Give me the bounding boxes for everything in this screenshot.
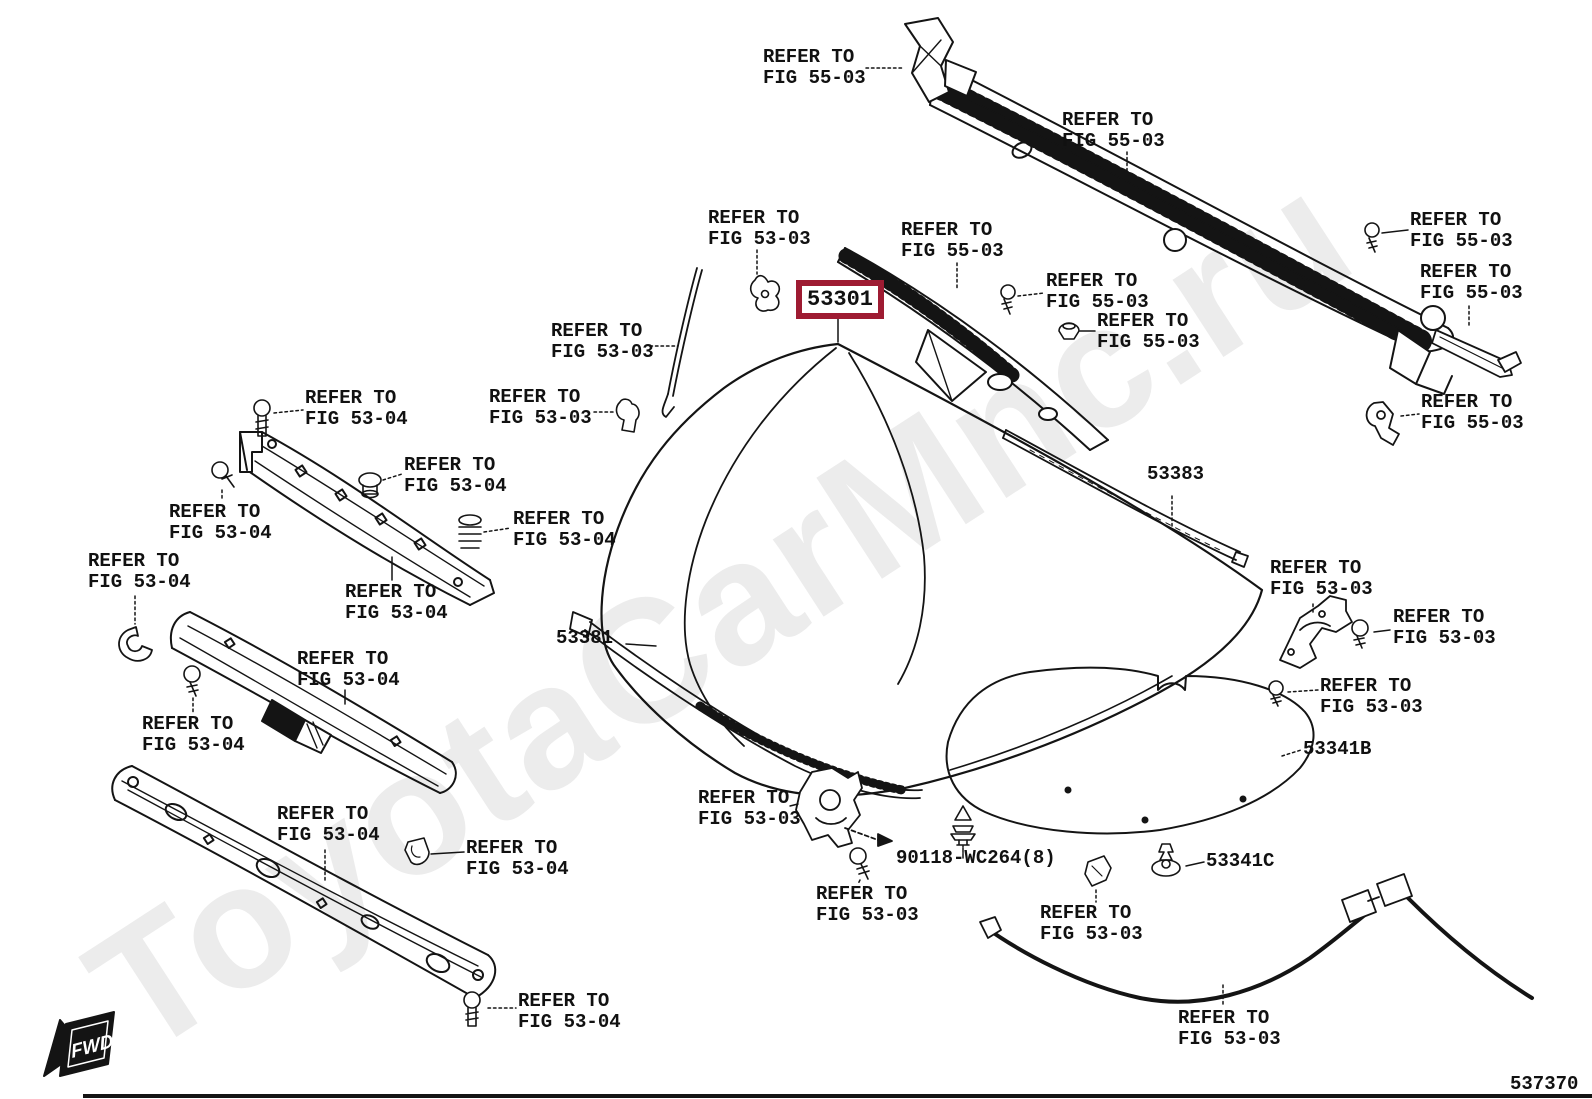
diagram-number: 537370 (1510, 1073, 1578, 1095)
part-53383[interactable]: 53383 (1147, 464, 1204, 485)
ref-fig-55-03-1: REFER TO FIG 55-03 (763, 47, 866, 89)
ref-fig-55-03-3: REFER TO FIG 55-03 (901, 220, 1004, 262)
ref-fig-55-03-7: REFER TO FIG 55-03 (1420, 262, 1523, 304)
part-53381[interactable]: 53381 (556, 628, 613, 649)
ref-fig-55-03-6: REFER TO FIG 55-03 (1410, 210, 1513, 252)
ref-fig-53-04-8: REFER TO FIG 53-04 (142, 714, 245, 756)
ref-fig-53-04-2: REFER TO FIG 53-04 (169, 502, 272, 544)
labels-layer: 53301 537370 REFER TO FIG 55-03REFER TO … (0, 0, 1592, 1099)
ref-fig-53-03-2: REFER TO FIG 53-03 (551, 321, 654, 363)
ref-fig-53-03-4: REFER TO FIG 53-03 (698, 788, 801, 830)
ref-fig-53-03-5: REFER TO FIG 53-03 (816, 884, 919, 926)
ref-fig-53-04-7: REFER TO FIG 53-04 (297, 649, 400, 691)
ref-fig-53-04-4: REFER TO FIG 53-04 (513, 509, 616, 551)
ref-fig-55-03-4: REFER TO FIG 55-03 (1046, 271, 1149, 313)
highlighted-part-53301[interactable]: 53301 (796, 280, 884, 319)
ref-fig-53-03-3: REFER TO FIG 53-03 (489, 387, 592, 429)
ref-fig-53-03-1: REFER TO FIG 53-03 (708, 208, 811, 250)
ref-fig-53-03-8: REFER TO FIG 53-03 (1270, 558, 1373, 600)
ref-fig-53-03-7: REFER TO FIG 53-03 (1178, 1008, 1281, 1050)
ref-fig-55-03-8: REFER TO FIG 55-03 (1421, 392, 1524, 434)
ref-fig-53-03-9: REFER TO FIG 53-03 (1393, 607, 1496, 649)
ref-fig-53-04-3: REFER TO FIG 53-04 (404, 455, 507, 497)
ref-fig-55-03-2: REFER TO FIG 55-03 (1062, 110, 1165, 152)
ref-fig-53-04-1: REFER TO FIG 53-04 (305, 388, 408, 430)
ref-fig-53-04-6: REFER TO FIG 53-04 (345, 582, 448, 624)
ref-fig-53-03-6: REFER TO FIG 53-03 (1040, 903, 1143, 945)
ref-fig-53-03-10: REFER TO FIG 53-03 (1320, 676, 1423, 718)
part-53341C[interactable]: 53341C (1206, 851, 1274, 872)
ref-fig-55-03-5: REFER TO FIG 55-03 (1097, 311, 1200, 353)
ref-fig-53-04-5: REFER TO FIG 53-04 (88, 551, 191, 593)
ref-fig-53-04-11: REFER TO FIG 53-04 (518, 991, 621, 1033)
ref-fig-53-04-9: REFER TO FIG 53-04 (277, 804, 380, 846)
part-53341B[interactable]: 53341B (1303, 739, 1371, 760)
part-90118-wc264[interactable]: 90118-WC264(8) (896, 848, 1056, 869)
ref-fig-53-04-10: REFER TO FIG 53-04 (466, 838, 569, 880)
